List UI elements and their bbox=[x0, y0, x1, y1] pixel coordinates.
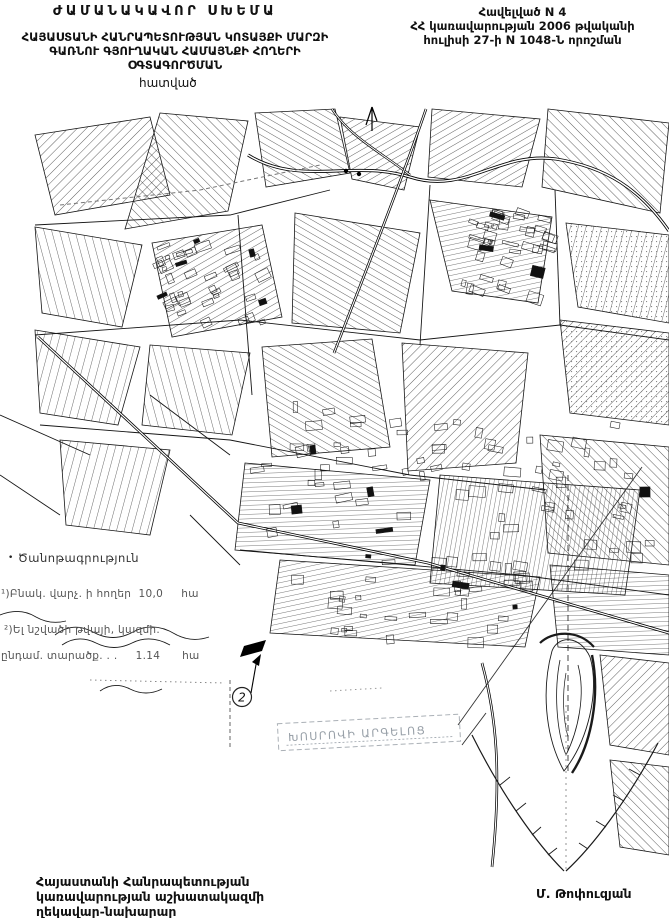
map-figure: 2 ԽՈՍՐՈՎԻ ԱՐԳԵԼՈՑ bbox=[0, 95, 669, 875]
site-marker: 2 bbox=[233, 640, 267, 707]
subtitle-line: ՀԱՅԱՍՏԱՆԻ ՀԱՆՐԱՊԵՏՈՒԹՅԱՆ ԿՈՏԱՅՔԻ ՄԱՐԶԻ bbox=[5, 30, 345, 44]
signatory-line: կառավարության աշխատակազմի bbox=[36, 889, 264, 904]
field-parcels bbox=[35, 109, 669, 855]
legend-bullet-icon: • bbox=[8, 553, 14, 563]
site-marker-polygon bbox=[240, 640, 266, 657]
subtitle-line: ՕԳՏԱԳՈՐԾՄԱՆ bbox=[5, 58, 345, 72]
legend-item: ընդամ. տարածք. . . 1.14 հա bbox=[1, 650, 200, 662]
legend-title: Ծանոթագրություն bbox=[18, 551, 139, 565]
annex-reference: Հավելված N 4 ՀՀ կառավարության 2006 թվակա… bbox=[378, 5, 667, 47]
page-title: ԺԱՄԱՆԱԿԱՎՈՐ ՍԽԵՄԱ bbox=[0, 4, 330, 19]
page-subtitle: ՀԱՅԱՍՏԱՆԻ ՀԱՆՐԱՊԵՏՈՒԹՅԱՆ ԿՈՏԱՅՔԻ ՄԱՐԶԻ Գ… bbox=[5, 30, 345, 72]
signature-name: Մ. Թոփուզյան bbox=[536, 886, 632, 901]
document-page: ԺԱՄԱՆԱԿԱՎՈՐ ՍԽԵՄԱ ՀԱՅԱՍՏԱՆԻ ՀԱՆՐԱՊԵՏՈՒԹՅ… bbox=[0, 0, 669, 918]
fragment-label: հատված bbox=[139, 76, 197, 90]
annex-line: Հավելված N 4 bbox=[378, 5, 667, 19]
marker-number-label: 2 bbox=[238, 691, 246, 705]
legend-item: ²)Ել նշվածի թվայի, կազմի. bbox=[4, 624, 160, 636]
signatory-line: Հայաստանի Հանրապետության bbox=[36, 874, 264, 889]
annex-line: հուլիսի 27-ի N 1048-Ն որոշման bbox=[378, 33, 667, 47]
topographic-map: 2 ԽՈՍՐՈՎԻ ԱՐԳԵԼՈՑ bbox=[0, 95, 669, 875]
annex-line: ՀՀ կառավարության 2006 թվականի bbox=[378, 19, 667, 33]
signatory-line: ղեկավար-նախարար bbox=[36, 904, 264, 918]
legend-title-row: •Ծանոթագրություն bbox=[8, 551, 139, 565]
subtitle-line: ԳԱՌՆՈՒ ԳՅՈՒՂԱԿԱՆ ՀԱՄԱՅՆՔԻ ՀՈՂԵՐԻ bbox=[5, 44, 345, 58]
reserve-stamp: ԽՈՍՐՈՎԻ ԱՐԳԵԼՈՑ bbox=[277, 714, 460, 750]
reserve-stamp-label: ԽՈՍՐՈՎԻ ԱՐԳԵԼՈՑ bbox=[288, 724, 427, 744]
legend-item: ¹)Բնակ. վարչ. ի հողեր 10,0 հա bbox=[1, 588, 199, 600]
marker-arrowhead-icon bbox=[252, 654, 261, 666]
signatory-title-block: Հայաստանի Հանրապետության կառավարության ա… bbox=[36, 874, 264, 918]
